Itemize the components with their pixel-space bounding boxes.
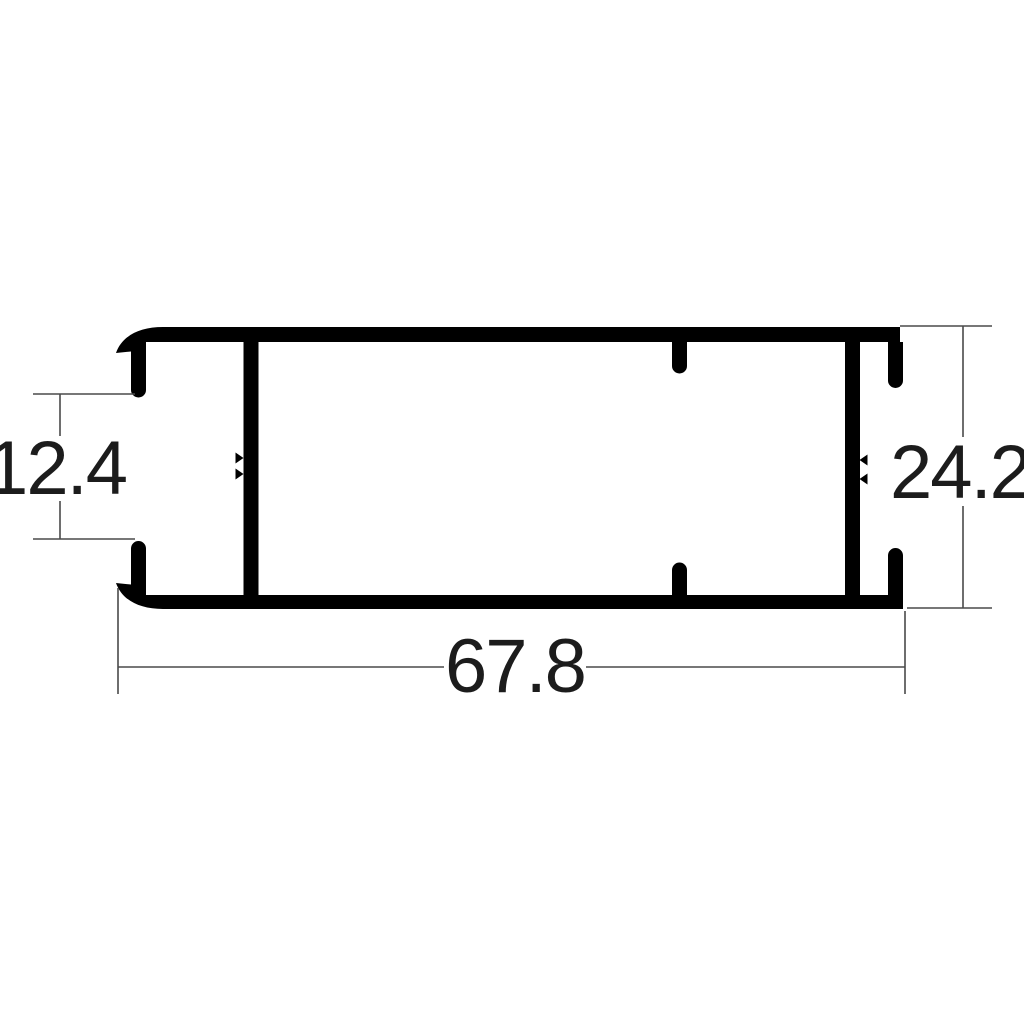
internal-web xyxy=(244,327,259,609)
profile-drawing-canvas: 12.4 24.2 67.8 xyxy=(0,0,1024,1024)
top-right-stub xyxy=(888,342,903,388)
dimension-left-opening: 12.4 xyxy=(0,394,135,539)
top-flange-with-left-hook xyxy=(116,327,900,398)
right-wall xyxy=(845,327,860,609)
web-snap-ridge-marks xyxy=(236,453,244,480)
dimension-overall-height: 24.2 xyxy=(890,326,1024,608)
dimension-value-left-opening: 12.4 xyxy=(0,426,127,511)
profile-outline xyxy=(116,327,903,609)
bottom-right-stub xyxy=(888,548,903,595)
bottom-middle-stub xyxy=(672,563,687,595)
dimension-value-overall-width: 67.8 xyxy=(445,624,585,709)
bottom-flange-with-left-hook xyxy=(116,541,903,609)
right-wall-snap-ridge-marks xyxy=(860,455,868,485)
dimension-value-overall-height: 24.2 xyxy=(890,430,1024,515)
technical-drawing-page: 12.4 24.2 67.8 xyxy=(0,0,1024,1024)
top-middle-stub xyxy=(672,342,687,374)
